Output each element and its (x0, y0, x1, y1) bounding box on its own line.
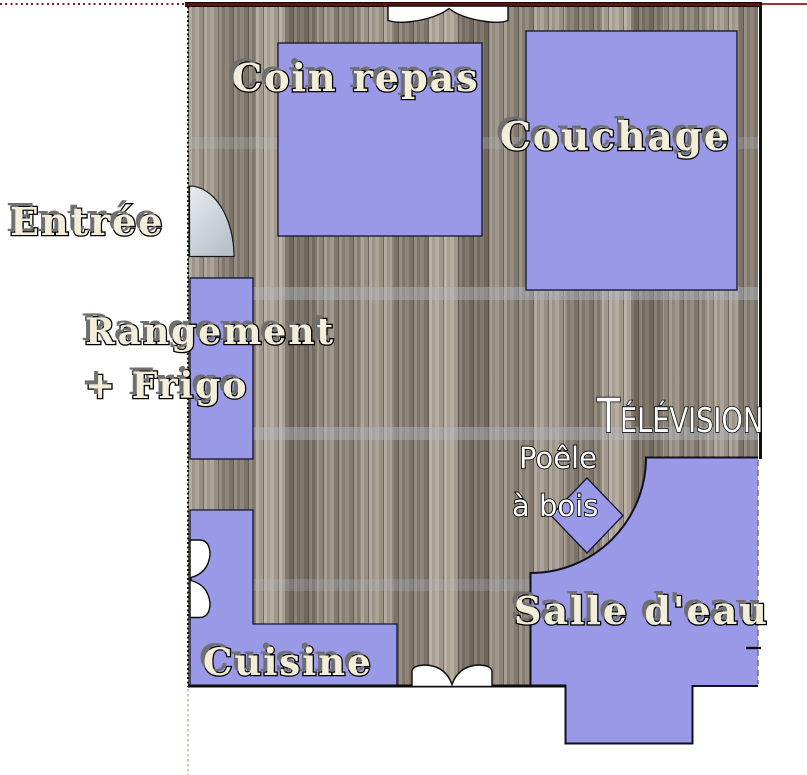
label-rangement-line1: Rangement (85, 305, 335, 359)
label-coin-repas: Coin repas (232, 55, 480, 100)
label-poele-line2: à bois (512, 489, 598, 523)
label-poele-line1: Poêle (519, 441, 597, 475)
label-rangement-frigo: Rangement + Frigo (85, 305, 335, 413)
label-cuisine: Cuisine (203, 640, 373, 684)
bottom-door-swing (412, 665, 492, 687)
top-window-swing (388, 6, 508, 22)
floorplan-image: Coin repas Couchage Entrée Rangement + F… (0, 0, 807, 775)
label-couchage: Couchage (500, 114, 731, 160)
label-rangement-line2: + Frigo (85, 359, 335, 413)
couchage-area (526, 31, 737, 290)
label-entree: Entrée (10, 199, 165, 244)
label-salle-eau: Salle d'eau (514, 588, 769, 633)
label-television: Télévision (597, 396, 763, 442)
entry-door-swing (190, 186, 235, 257)
